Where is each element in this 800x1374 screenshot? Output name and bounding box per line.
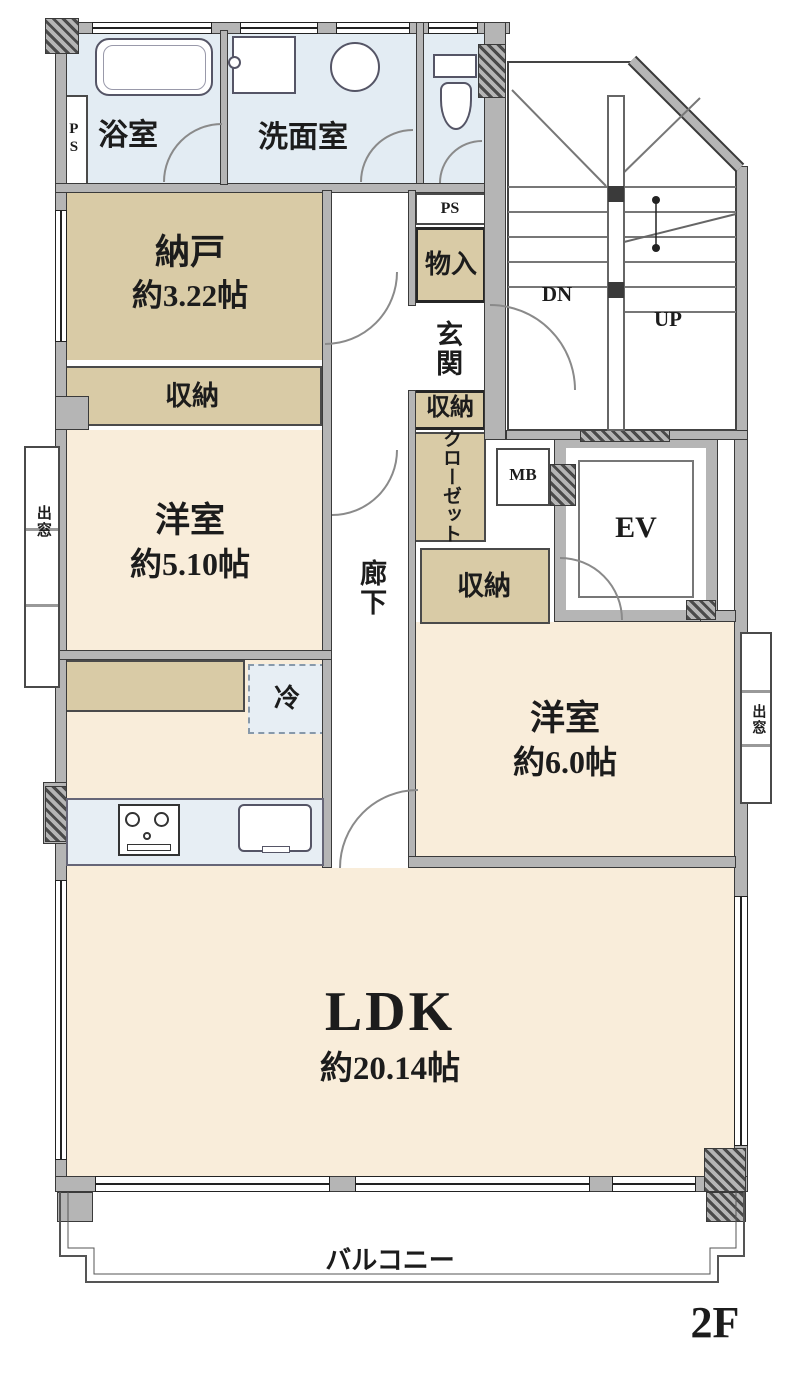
bay-window-right-label: 出窓 (746, 688, 768, 752)
stair-direction-dot1 (652, 196, 660, 204)
hallway-label: 廊下 (356, 552, 386, 624)
storage-room-label: 納戸 (130, 232, 250, 274)
bay-window-left (24, 446, 60, 688)
stairs-up-label: UP (647, 306, 689, 332)
stair-divider-node1 (608, 186, 624, 202)
closet-entrance-label: 収納 (422, 394, 478, 424)
window-balcony3 (612, 1176, 696, 1192)
pillar-hatch-kitchen (45, 786, 67, 842)
pillar-hatch-toilet (478, 44, 506, 98)
basin-icon (330, 42, 380, 92)
western-room1-label: 洋室 (130, 500, 250, 542)
wall-washroom-toilet (416, 22, 424, 184)
elevator-label: EV (600, 510, 672, 546)
stair-divider (608, 96, 624, 430)
stair-break-line (624, 214, 736, 242)
storage-room-size: 約3.22帖 (105, 276, 275, 316)
ldk-kitchen-area (63, 658, 332, 1178)
window-top-bath (92, 22, 212, 34)
stair-diagonal-wall-edge (632, 60, 740, 168)
pillar-hatch-balcony (706, 1192, 746, 1222)
window-left-nando (55, 210, 67, 342)
window-balcony2 (355, 1176, 590, 1192)
pillar-hatch-topleft (45, 18, 79, 54)
closet-room2-label: 収納 (432, 570, 536, 602)
bathroom-label: 浴室 (78, 118, 178, 154)
window-balcony1 (95, 1176, 330, 1192)
bay-left-mullion2 (26, 604, 58, 607)
balcony-label: バルコニー (310, 1244, 470, 1278)
wall-hall-right-lower (408, 390, 416, 868)
window-top-washroom2 (336, 22, 410, 34)
window-right-ldk (734, 896, 748, 1146)
closet-label: クローゼット (424, 452, 476, 520)
stairs-down-label: DN (536, 281, 578, 307)
bay-window-left-label: 出窓 (30, 484, 54, 560)
wall-pillar-left (55, 396, 89, 430)
ps-right-label: PS (422, 196, 478, 222)
storage-compartment-label: 物入 (422, 250, 480, 280)
hallway-area (330, 188, 410, 868)
western-room2-label: 洋室 (505, 698, 625, 740)
closet-nando-label: 収納 (140, 380, 244, 412)
wall-wet-bottom (55, 183, 496, 193)
toilet-tank-icon (433, 54, 477, 78)
pillar-hatch-ldk (704, 1148, 746, 1192)
stair-divider-node2 (608, 282, 624, 298)
ldk-label: LDK (310, 982, 470, 1042)
stairwell-outline (508, 62, 736, 430)
stair-diagonal-wall (632, 60, 740, 168)
balcony-end-wall (57, 1192, 93, 1222)
floor-plan: PS 浴室 洗面室 納戸 約3.22帖 収納 洋室 約5.10帖 出窓 廊下 P… (0, 0, 800, 1374)
wall-room2-bottom (408, 856, 736, 868)
pillar-hatch-stair (580, 430, 670, 442)
washroom-label: 洗面室 (240, 120, 366, 156)
wall-hall-right-upper (408, 190, 416, 306)
entrance-label: 玄関 (432, 314, 462, 384)
ldk-size: 約20.14帖 (290, 1048, 490, 1090)
stove-icon (118, 804, 180, 856)
stair-direction-dot2 (652, 244, 660, 252)
faucet-icon (228, 56, 241, 69)
meter-box-label: MB (498, 462, 548, 488)
window-top-washroom1 (240, 22, 318, 34)
wall-hall-left (322, 190, 332, 868)
pillar-hatch-ev (686, 600, 716, 620)
window-left-ldk (55, 880, 67, 1160)
kitchen-sink-icon (238, 804, 312, 852)
wall-room1-bottom (55, 650, 332, 660)
wall-bath-washroom (220, 30, 228, 185)
stair-treads (508, 90, 736, 312)
western-room2-size: 約6.0帖 (490, 742, 640, 784)
bathtub-icon (95, 38, 213, 96)
pillar-hatch-mb (550, 464, 576, 506)
refrigerator-label: 冷 (264, 682, 310, 716)
western-room1-size: 約5.10帖 (100, 544, 280, 586)
western-room2-area (415, 622, 736, 860)
kitchen-counter-back (63, 660, 245, 712)
washing-machine-icon (232, 36, 296, 94)
floor-tag: 2F (682, 1298, 748, 1348)
window-top-toilet (428, 22, 478, 34)
